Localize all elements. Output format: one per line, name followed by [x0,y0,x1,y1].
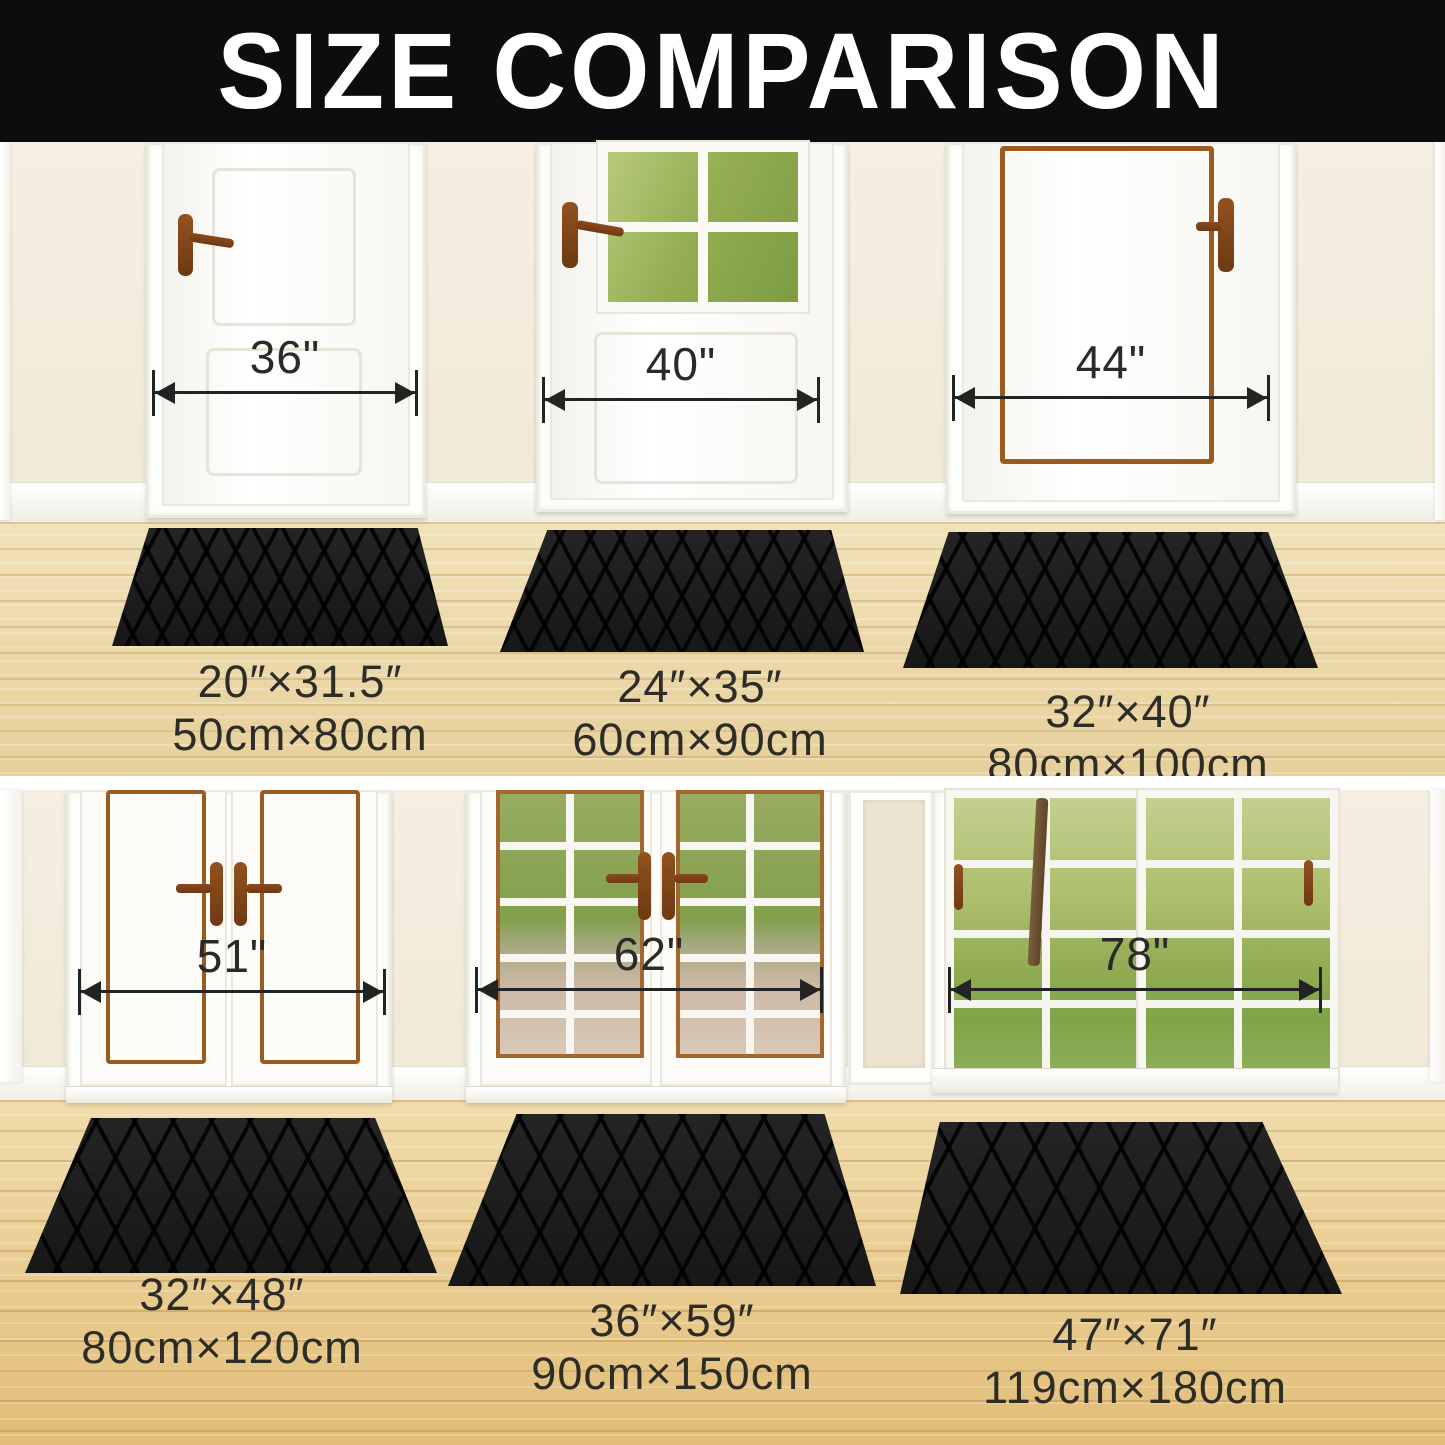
width-label: 44" [952,335,1270,389]
mat-size-label: 32″×48″ 80cm×120cm [81,1268,362,1374]
doormat-32x40 [903,532,1318,668]
arrow-head-right-icon [363,981,383,1003]
title-banner: SIZE COMPARISON [0,0,1445,142]
door-handle-lever-icon [246,884,282,893]
width-label: 51" [78,929,386,983]
arrow-head-left-icon [478,979,498,1001]
size-comparison-image: SIZE COMPARISON 36" 40" [0,0,1445,1445]
width-label: 62" [475,927,823,981]
door-sill [66,1086,392,1103]
arrow-head-right-icon [800,979,820,1001]
arrow-head-left-icon [545,389,565,411]
door-51-left-trim [106,790,206,1064]
arrow-line [954,396,1268,399]
door-handle-icon [662,852,675,920]
door-handle-lever-icon [606,874,640,883]
width-arrow-51: 51" [78,969,386,1015]
doormat-36x59 [448,1114,876,1286]
doormat-32x48 [25,1118,437,1273]
mat-size-cm: 50cm×80cm [172,708,427,761]
width-arrow-78: 78" [948,967,1322,1013]
door-40 [536,142,848,512]
right-wall-trim [1430,790,1445,1082]
mat-size-label: 36″×59″ 90cm×150cm [531,1294,812,1400]
mat-size-inches: 24″×35″ [572,660,827,713]
arrow-line [80,990,384,993]
door-sill [466,1086,846,1103]
mat-size-inches: 36″×59″ [531,1294,812,1347]
doormat-20x31 [112,528,448,646]
door-62-left-glass [496,790,644,1058]
arrow-head-right-icon [395,382,415,404]
door-handle-lever-icon [176,884,212,893]
door-handle-icon [178,214,193,276]
door-62-right-glass [676,790,824,1058]
mat-size-inches: 20″×31.5″ [172,655,427,708]
door-handle-icon [210,862,223,926]
door-handle-icon [562,202,578,268]
mat-size-inches: 32″×40″ [987,685,1268,738]
scene-divider [0,776,1445,790]
sidelight-inner-panel [863,800,925,1068]
arrow-line [477,988,821,991]
arrow-head-right-icon [1299,979,1319,1001]
right-wall-trim [1435,142,1445,520]
door-handle-icon [1304,860,1313,906]
left-wall-trim [0,790,22,1082]
mat-size-cm: 119cm×180cm [983,1361,1287,1414]
arrow-line [950,988,1320,991]
mat-size-label: 47″×71″ 119cm×180cm [983,1308,1287,1414]
arrow-head-right-icon [797,389,817,411]
width-arrow-36: 36" [152,370,418,416]
arrow-head-left-icon [955,387,975,409]
arrow-head-left-icon [951,979,971,1001]
arrow-line [154,391,416,394]
arrow-head-left-icon [155,382,175,404]
mat-size-cm: 80cm×120cm [81,1321,362,1374]
left-wall-trim [0,142,10,520]
door-40-window [598,142,808,312]
width-label: 40" [542,337,820,391]
door-handle-icon [234,862,247,926]
sidelight-panel [848,790,940,1085]
mat-size-inches: 32″×48″ [81,1268,362,1321]
door-handle-icon [954,864,963,910]
door-36-upper-panel [212,168,356,326]
width-arrow-44: 44" [952,375,1270,421]
doormat-24x35 [500,530,864,652]
mat-size-label: 24″×35″ 60cm×90cm [572,660,827,766]
width-label: 78" [948,927,1322,981]
mat-size-label: 20″×31.5″ 50cm×80cm [172,655,427,761]
width-arrow-40: 40" [542,377,820,423]
mat-size-inches: 47″×71″ [983,1308,1287,1361]
door-handle-lever-icon [1196,222,1222,231]
arrow-line [544,398,818,401]
door-44 [946,142,1296,514]
page-title: SIZE COMPARISON [217,9,1227,133]
width-label: 36" [152,330,418,384]
door-handle-lever-icon [674,874,708,883]
door-51-right-trim [260,790,360,1064]
door-handle-icon [1218,198,1234,272]
door-handle-icon [638,852,651,920]
door-sill [932,1068,1338,1093]
arrow-head-right-icon [1247,387,1267,409]
width-arrow-62: 62" [475,967,823,1013]
arrow-head-left-icon [81,981,101,1003]
mat-size-cm: 60cm×90cm [572,713,827,766]
mat-size-cm: 90cm×150cm [531,1347,812,1400]
